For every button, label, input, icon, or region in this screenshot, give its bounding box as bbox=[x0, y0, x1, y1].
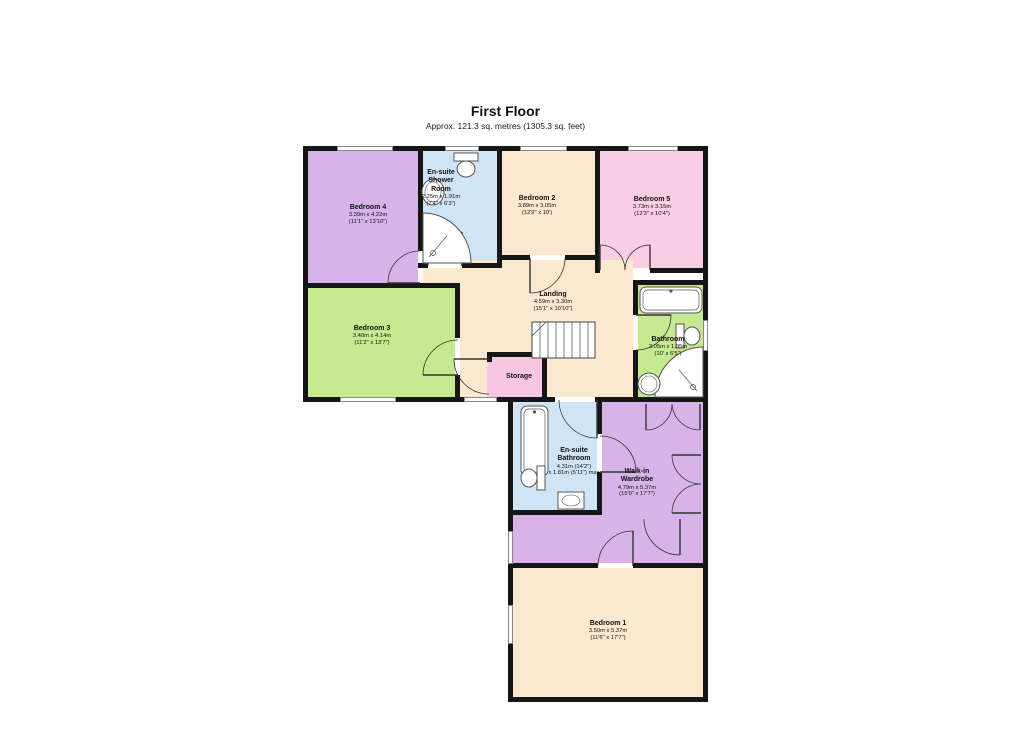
door-arc bbox=[600, 436, 636, 472]
door-arc bbox=[672, 455, 701, 484]
sink-basin bbox=[641, 376, 657, 392]
sink-basin bbox=[425, 182, 441, 202]
toilet-fixture bbox=[454, 153, 478, 177]
toilet-fixture bbox=[676, 324, 700, 348]
door-arc bbox=[646, 404, 672, 430]
floorplan-overlay-svg bbox=[0, 0, 1024, 745]
toilet-bowl bbox=[684, 327, 700, 345]
door-arc bbox=[600, 245, 625, 270]
sink-basin bbox=[562, 495, 580, 506]
toilet-bowl bbox=[457, 161, 475, 177]
toilet-tank bbox=[454, 153, 478, 161]
bath-tap bbox=[533, 410, 536, 413]
door-arc bbox=[636, 315, 671, 350]
toilet-tank bbox=[537, 466, 545, 490]
door-arc bbox=[388, 251, 420, 283]
toilet-tank bbox=[676, 324, 684, 348]
door-arc bbox=[625, 245, 650, 270]
door-arc bbox=[530, 258, 565, 293]
door-arc bbox=[598, 531, 633, 566]
bath-tub-inner bbox=[524, 409, 545, 473]
door-arc bbox=[672, 484, 701, 513]
toilet-bowl bbox=[521, 469, 537, 487]
stairs bbox=[532, 322, 595, 358]
door-arc bbox=[672, 404, 700, 430]
door-arc bbox=[454, 359, 489, 394]
door-arc bbox=[423, 340, 458, 375]
floorplan-page: First Floor Approx. 121.3 sq. metres (13… bbox=[0, 0, 1024, 745]
bath-tub-inner bbox=[643, 290, 699, 310]
door-arc bbox=[644, 519, 680, 555]
door-arc bbox=[559, 400, 597, 438]
bath-tap bbox=[669, 289, 672, 292]
